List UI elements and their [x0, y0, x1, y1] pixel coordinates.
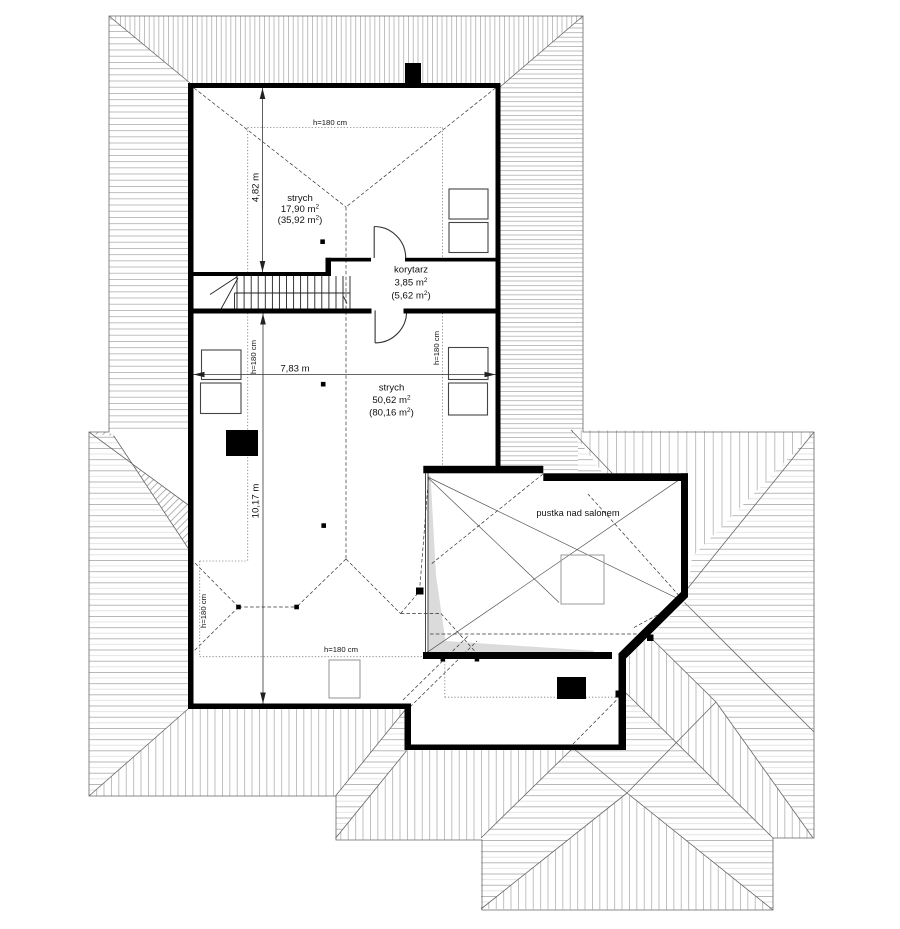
svg-text:pustka nad salonem: pustka nad salonem — [536, 508, 619, 518]
svg-text:korytarz: korytarz — [394, 265, 428, 276]
svg-text:strych: strych — [287, 193, 313, 204]
svg-text:h=180 cm: h=180 cm — [432, 331, 441, 365]
svg-text:h=180 cm: h=180 cm — [324, 645, 358, 654]
svg-text:10,17 m: 10,17 m — [251, 484, 262, 519]
svg-text:4,82 m: 4,82 m — [251, 173, 262, 202]
svg-text:7,83 m: 7,83 m — [280, 364, 309, 375]
svg-text:h=180 cm: h=180 cm — [199, 594, 208, 628]
svg-text:50,62 m2: 50,62 m2 — [372, 395, 411, 407]
svg-text:17,90 m2: 17,90 m2 — [281, 203, 320, 215]
svg-text:strych: strych — [379, 383, 405, 394]
svg-text:h=180 cm: h=180 cm — [249, 340, 258, 374]
svg-text:3,85 m2: 3,85 m2 — [395, 277, 428, 289]
svg-text:h=180 cm: h=180 cm — [313, 118, 347, 127]
